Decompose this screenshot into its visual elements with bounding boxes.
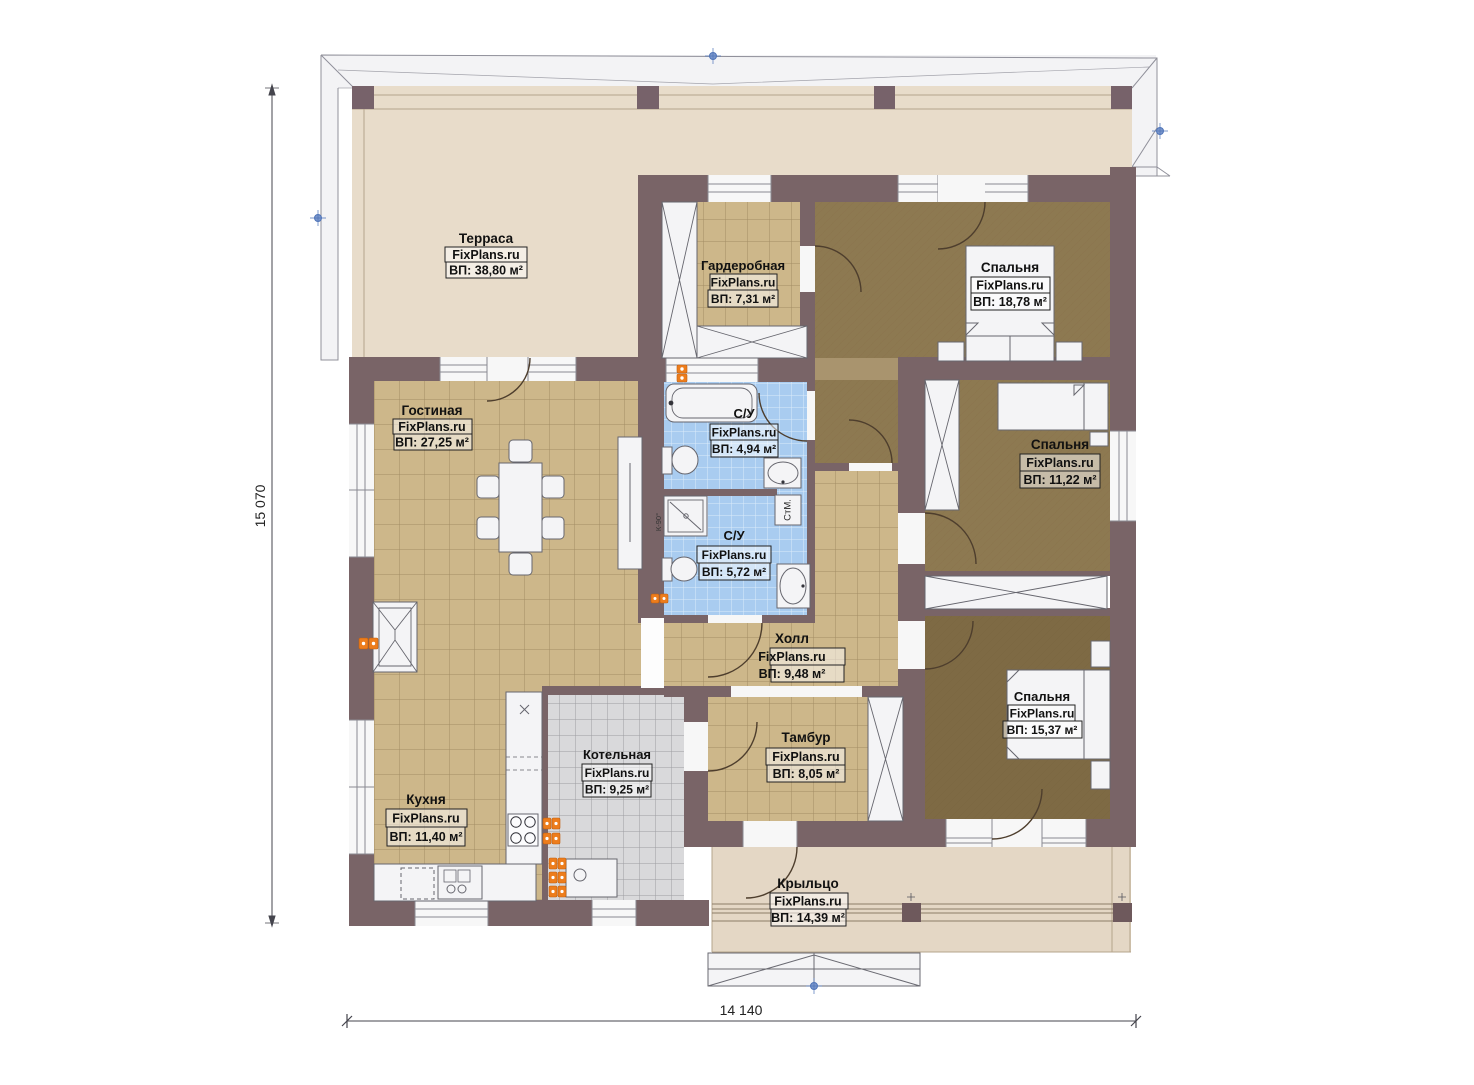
- svg-text:ВП: 8,05 м²: ВП: 8,05 м²: [773, 767, 840, 781]
- svg-text:К-90°: К-90°: [654, 513, 663, 531]
- svg-text:FixPlans.ru: FixPlans.ru: [774, 895, 841, 909]
- svg-text:Терраса: Терраса: [459, 231, 514, 246]
- svg-text:ВП: 5,72 м²: ВП: 5,72 м²: [702, 565, 766, 579]
- svg-text:Тамбур: Тамбур: [782, 730, 831, 745]
- svg-text:ВП: 18,78 м²: ВП: 18,78 м²: [973, 295, 1047, 309]
- svg-text:ВП: 38,80 м²: ВП: 38,80 м²: [449, 264, 523, 278]
- svg-text:FixPlans.ru: FixPlans.ru: [392, 812, 459, 826]
- svg-text:Гардеробная: Гардеробная: [701, 258, 785, 273]
- svg-text:Спальня: Спальня: [1014, 689, 1070, 704]
- svg-text:ВП: 9,48 м²: ВП: 9,48 м²: [759, 667, 826, 681]
- svg-text:ВП: 27,25 м²: ВП: 27,25 м²: [395, 436, 469, 450]
- svg-text:ВП: 9,25 м²: ВП: 9,25 м²: [585, 783, 649, 797]
- svg-text:FixPlans.ru: FixPlans.ru: [976, 279, 1043, 293]
- svg-text:С/У: С/У: [723, 528, 745, 543]
- svg-text:ВП: 7,31 м²: ВП: 7,31 м²: [711, 292, 775, 306]
- svg-text:С/У: С/У: [733, 406, 755, 421]
- svg-text:Крыльцо: Крыльцо: [777, 876, 838, 891]
- svg-text:15 070: 15 070: [252, 484, 268, 527]
- svg-text:FixPlans.ru: FixPlans.ru: [712, 426, 777, 440]
- svg-text:ВП: 14,39 м²: ВП: 14,39 м²: [771, 911, 845, 925]
- svg-text:ВП: 4,94 м²: ВП: 4,94 м²: [712, 442, 776, 456]
- svg-text:Спальня: Спальня: [1031, 437, 1089, 452]
- svg-text:Спальня: Спальня: [981, 260, 1039, 275]
- svg-text:Гостиная: Гостиная: [401, 403, 462, 418]
- svg-text:FixPlans.ru: FixPlans.ru: [452, 248, 519, 262]
- svg-text:FixPlans.ru: FixPlans.ru: [1026, 456, 1093, 470]
- svg-text:14 140: 14 140: [720, 1002, 763, 1018]
- svg-text:FixPlans.ru: FixPlans.ru: [772, 750, 839, 764]
- svg-text:FixPlans.ru: FixPlans.ru: [398, 420, 465, 434]
- svg-text:FixPlans.ru: FixPlans.ru: [585, 766, 650, 780]
- svg-text:FixPlans.ru: FixPlans.ru: [702, 548, 767, 562]
- svg-text:FixPlans.ru: FixPlans.ru: [711, 276, 776, 290]
- svg-text:Кухня: Кухня: [406, 792, 445, 807]
- svg-text:ВП: 15,37 м²: ВП: 15,37 м²: [1007, 723, 1078, 737]
- svg-text:ВП: 11,22 м²: ВП: 11,22 м²: [1023, 473, 1096, 487]
- svg-text:FixPlans.ru: FixPlans.ru: [1010, 707, 1075, 721]
- svg-text:ВП: 11,40 м²: ВП: 11,40 м²: [389, 830, 462, 844]
- svg-text:СтМ.: СтМ.: [783, 499, 794, 521]
- svg-text:Холл: Холл: [775, 631, 809, 646]
- svg-text:FixPlans.ru: FixPlans.ru: [758, 650, 825, 664]
- svg-text:Котельная: Котельная: [583, 747, 651, 762]
